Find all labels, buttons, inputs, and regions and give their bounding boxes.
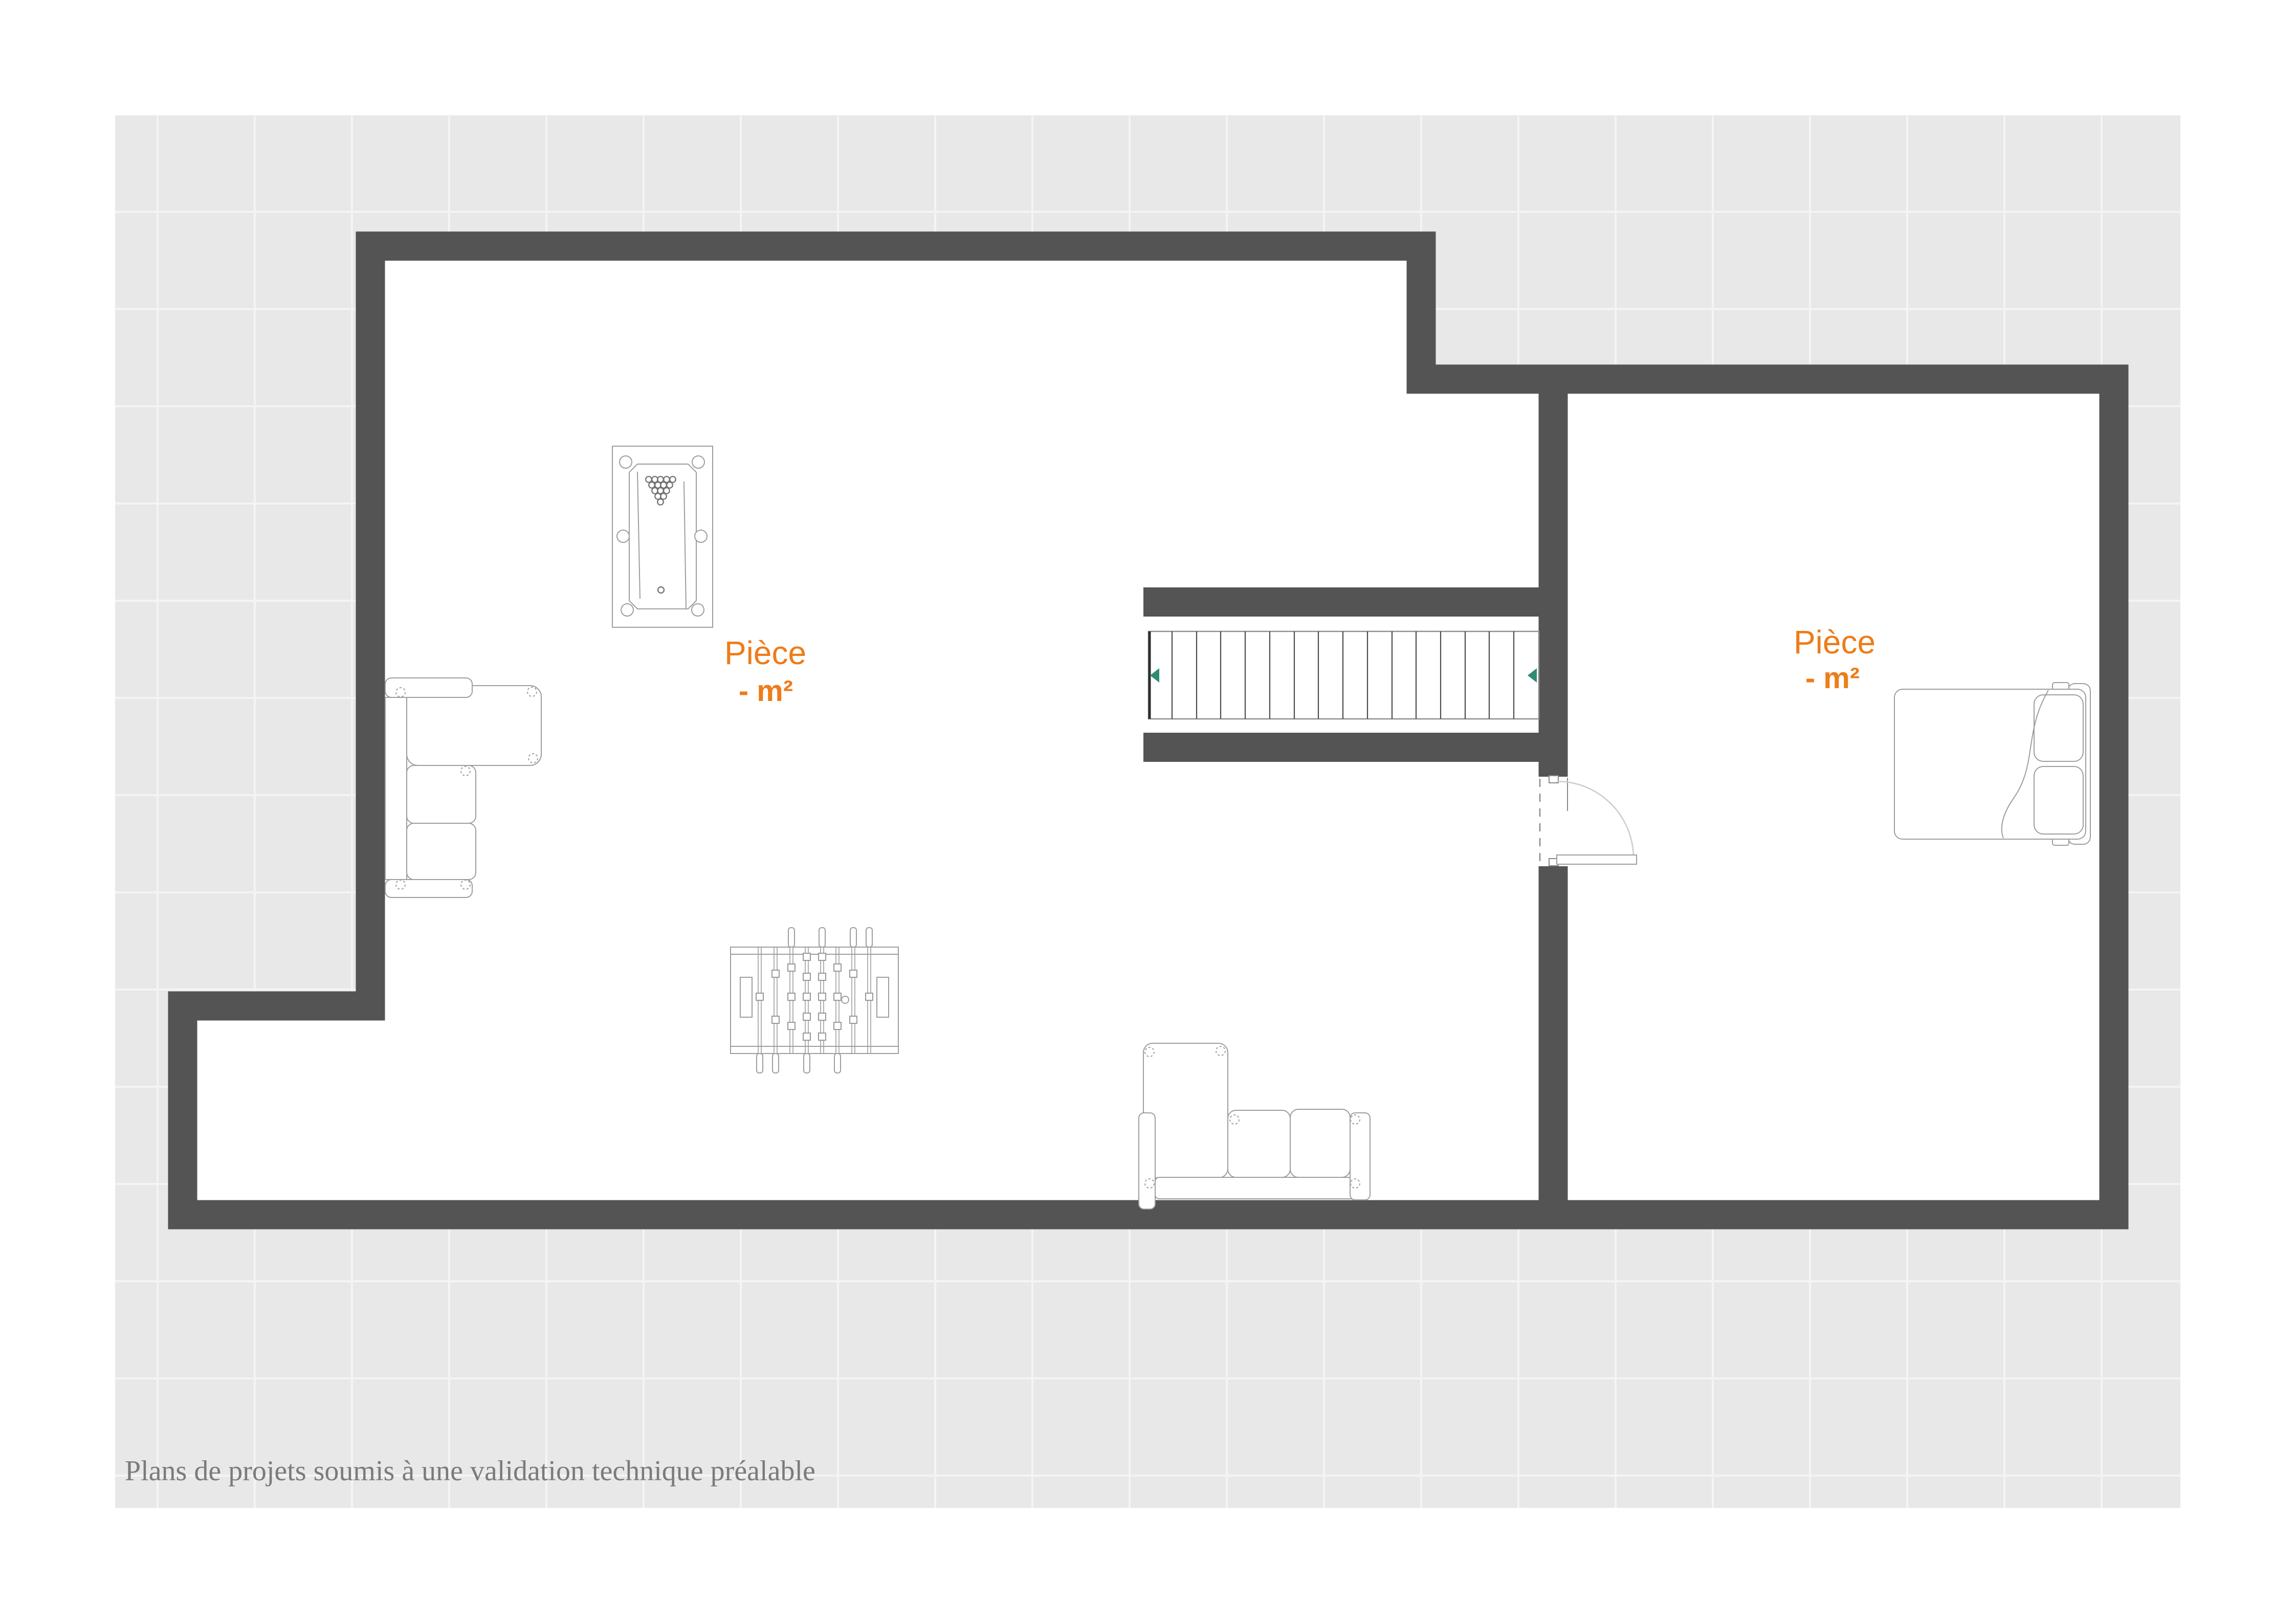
pillow — [2034, 766, 2083, 834]
billiard-table-icon — [612, 446, 713, 627]
floor-plan-page: Pièce - m² Pièce - m² Plans de projets s… — [0, 0, 2296, 1623]
stair-wall-upper — [1143, 587, 1539, 617]
room-area: - m² — [1805, 662, 1860, 695]
staircase-icon — [1143, 587, 1539, 762]
floor-plan-svg: Pièce - m² Pièce - m² Plans de projets s… — [0, 0, 2296, 1623]
disclaimer-text: Plans de projets soumis à une validation… — [125, 1455, 815, 1487]
room-name: Pièce — [724, 634, 806, 671]
room-name: Pièce — [1794, 624, 1875, 661]
double-bed-icon — [1894, 683, 2090, 845]
room-area: - m² — [739, 674, 793, 708]
stair-wall-lower — [1143, 733, 1539, 762]
door-leaf — [1557, 855, 1637, 864]
